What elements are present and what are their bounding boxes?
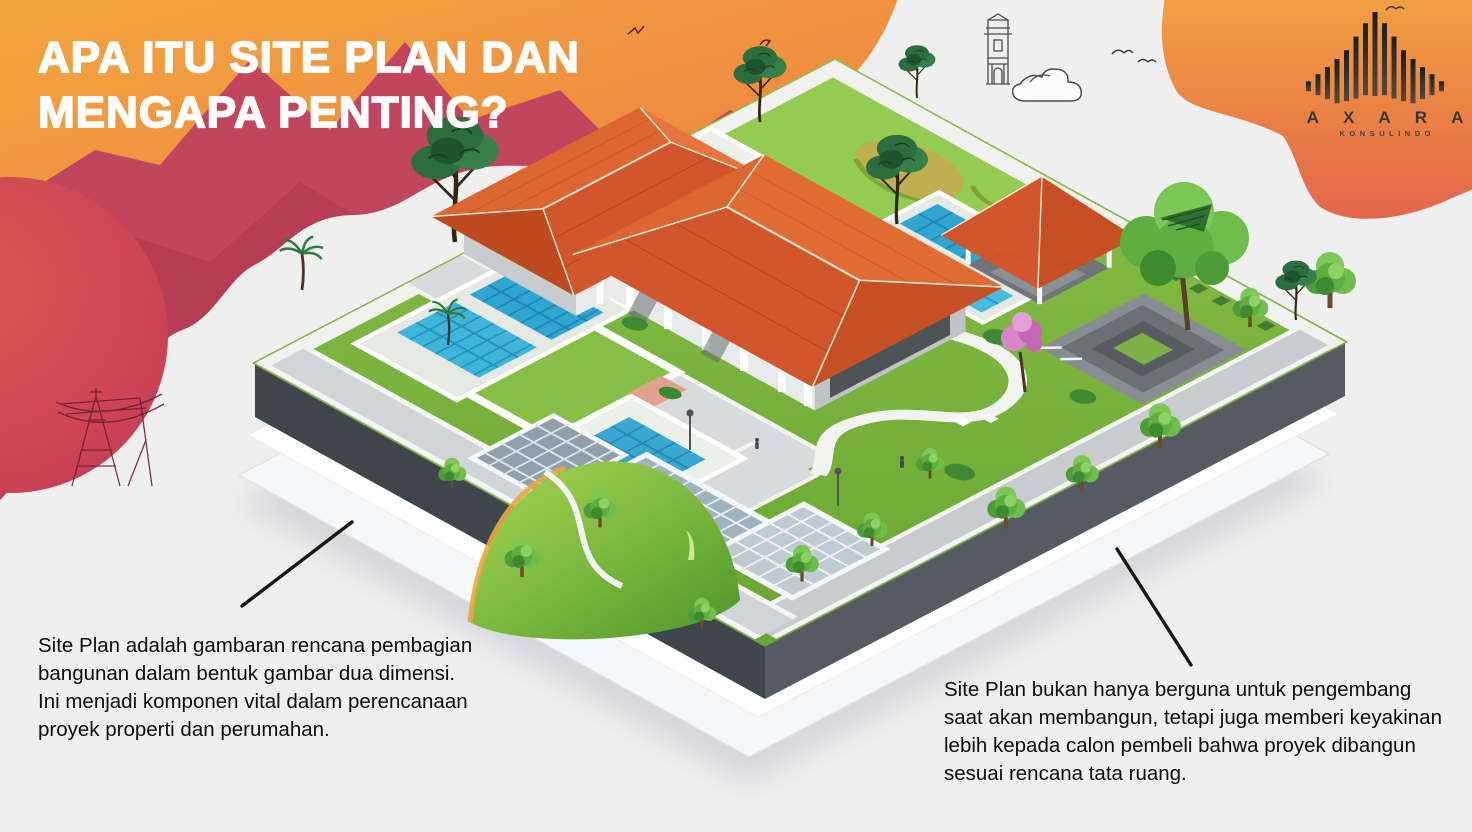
water-tower-sketch-icon	[984, 14, 1012, 84]
caption-left-line: Ini menjadi komponen vital dalam perenca…	[38, 688, 538, 716]
bar-peak-logo-icon	[1290, 10, 1460, 106]
caption-right-line: saat akan membangun, tetapi juga memberi…	[944, 704, 1464, 732]
cloud-sketch-icon	[1013, 69, 1082, 101]
caption-left-line: Site Plan adalah gambaran rencana pembag…	[38, 632, 538, 660]
infographic-poster: APA ITU SITE PLAN DAN MENGAPA PENTING? S…	[0, 0, 1472, 832]
caption-right-line: Site Plan bukan hanya berguna untuk peng…	[944, 676, 1464, 704]
title-line-2: MENGAPA PENTING?	[38, 85, 580, 140]
caption-right-line: sesuai rencana tata ruang.	[944, 760, 1464, 788]
page-title: APA ITU SITE PLAN DAN MENGAPA PENTING?	[38, 30, 580, 140]
caption-left-line: proyek properti dan perumahan.	[38, 716, 538, 744]
brand-logo: A X A R A KONSULINDO	[1290, 10, 1472, 138]
title-line-1: APA ITU SITE PLAN DAN	[38, 30, 580, 85]
logo-subtitle: KONSULINDO	[1290, 129, 1472, 138]
logo-name: A X A R A	[1290, 108, 1472, 128]
caption-left: Site Plan adalah gambaran rencana pembag…	[38, 632, 538, 744]
caption-right: Site Plan bukan hanya berguna untuk peng…	[944, 676, 1464, 788]
caption-right-line: lebih kepada calon pembeli bahwa proyek …	[944, 732, 1464, 760]
caption-left-line: bangunan dalam bentuk gambar dua dimensi…	[38, 660, 538, 688]
